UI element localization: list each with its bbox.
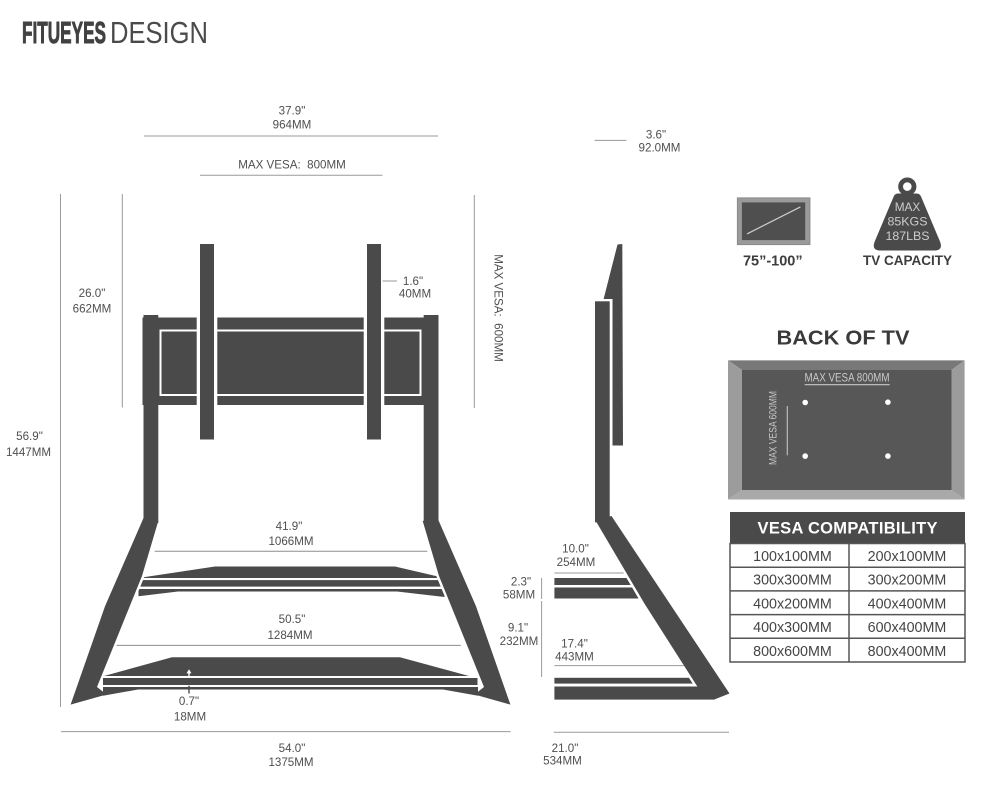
svg-text:254MM: 254MM [557, 556, 596, 569]
svg-text:10.0": 10.0" [562, 543, 589, 556]
svg-text:100x100MM: 100x100MM [753, 549, 832, 565]
svg-text:300x300MM: 300x300MM [753, 573, 832, 589]
svg-text:21.0": 21.0" [552, 742, 579, 755]
svg-text:600x400MM: 600x400MM [868, 620, 947, 636]
svg-text:1447MM: 1447MM [6, 446, 51, 459]
svg-text:534MM: 534MM [543, 755, 582, 768]
svg-text:92.0MM: 92.0MM [639, 142, 681, 155]
svg-text:VESA COMPATIBILITY: VESA COMPATIBILITY [758, 520, 938, 538]
svg-text:800x600MM: 800x600MM [753, 644, 832, 660]
svg-text:BACK OF TV: BACK OF TV [777, 327, 910, 350]
svg-text:FITUEYES: FITUEYES [22, 15, 106, 50]
svg-text:TV CAPACITY: TV CAPACITY [863, 253, 952, 268]
svg-text:DESIGN: DESIGN [110, 15, 208, 50]
svg-text:1066MM: 1066MM [268, 535, 313, 548]
svg-text:54.0": 54.0" [279, 742, 306, 755]
svg-text:800x400MM: 800x400MM [868, 644, 947, 660]
svg-text:MAX VESA: 600MM: MAX VESA: 600MM [492, 254, 505, 362]
svg-text:18MM: 18MM [174, 711, 206, 724]
svg-text:41.9": 41.9" [276, 520, 303, 533]
svg-text:1375MM: 1375MM [268, 756, 313, 769]
svg-text:9.1": 9.1" [508, 622, 528, 635]
svg-text:85KGS: 85KGS [888, 215, 928, 229]
svg-text:MAX VESA: 800MM: MAX VESA: 800MM [238, 159, 346, 172]
svg-text:400x200MM: 400x200MM [753, 596, 832, 612]
svg-text:75”-100”: 75”-100” [743, 253, 803, 269]
svg-text:MAX: MAX [895, 200, 921, 214]
svg-text:400x400MM: 400x400MM [868, 596, 947, 612]
svg-text:17.4": 17.4" [561, 638, 588, 651]
svg-text:56.9": 56.9" [16, 430, 43, 443]
svg-text:0.7": 0.7" [179, 695, 199, 708]
svg-text:2.3": 2.3" [511, 576, 531, 589]
svg-text:400x300MM: 400x300MM [753, 620, 832, 636]
svg-text:662MM: 662MM [73, 303, 112, 316]
svg-text:1.6": 1.6" [403, 275, 423, 288]
svg-text:37.9": 37.9" [279, 105, 306, 118]
svg-text:232MM: 232MM [500, 635, 539, 648]
svg-text:MAX VESA 600MM: MAX VESA 600MM [768, 391, 780, 465]
svg-text:443MM: 443MM [555, 651, 594, 664]
svg-text:187LBS: 187LBS [885, 229, 929, 243]
svg-text:1284MM: 1284MM [267, 629, 312, 642]
svg-text:300x200MM: 300x200MM [868, 573, 947, 589]
svg-text:200x100MM: 200x100MM [868, 549, 947, 565]
svg-text:3.6": 3.6" [646, 129, 666, 142]
svg-text:MAX VESA 800MM: MAX VESA 800MM [805, 372, 890, 384]
svg-text:26.0": 26.0" [79, 287, 106, 300]
svg-text:40MM: 40MM [399, 288, 431, 301]
svg-text:964MM: 964MM [273, 119, 312, 132]
svg-text:50.5": 50.5" [279, 613, 306, 626]
svg-text:58MM: 58MM [503, 589, 535, 602]
